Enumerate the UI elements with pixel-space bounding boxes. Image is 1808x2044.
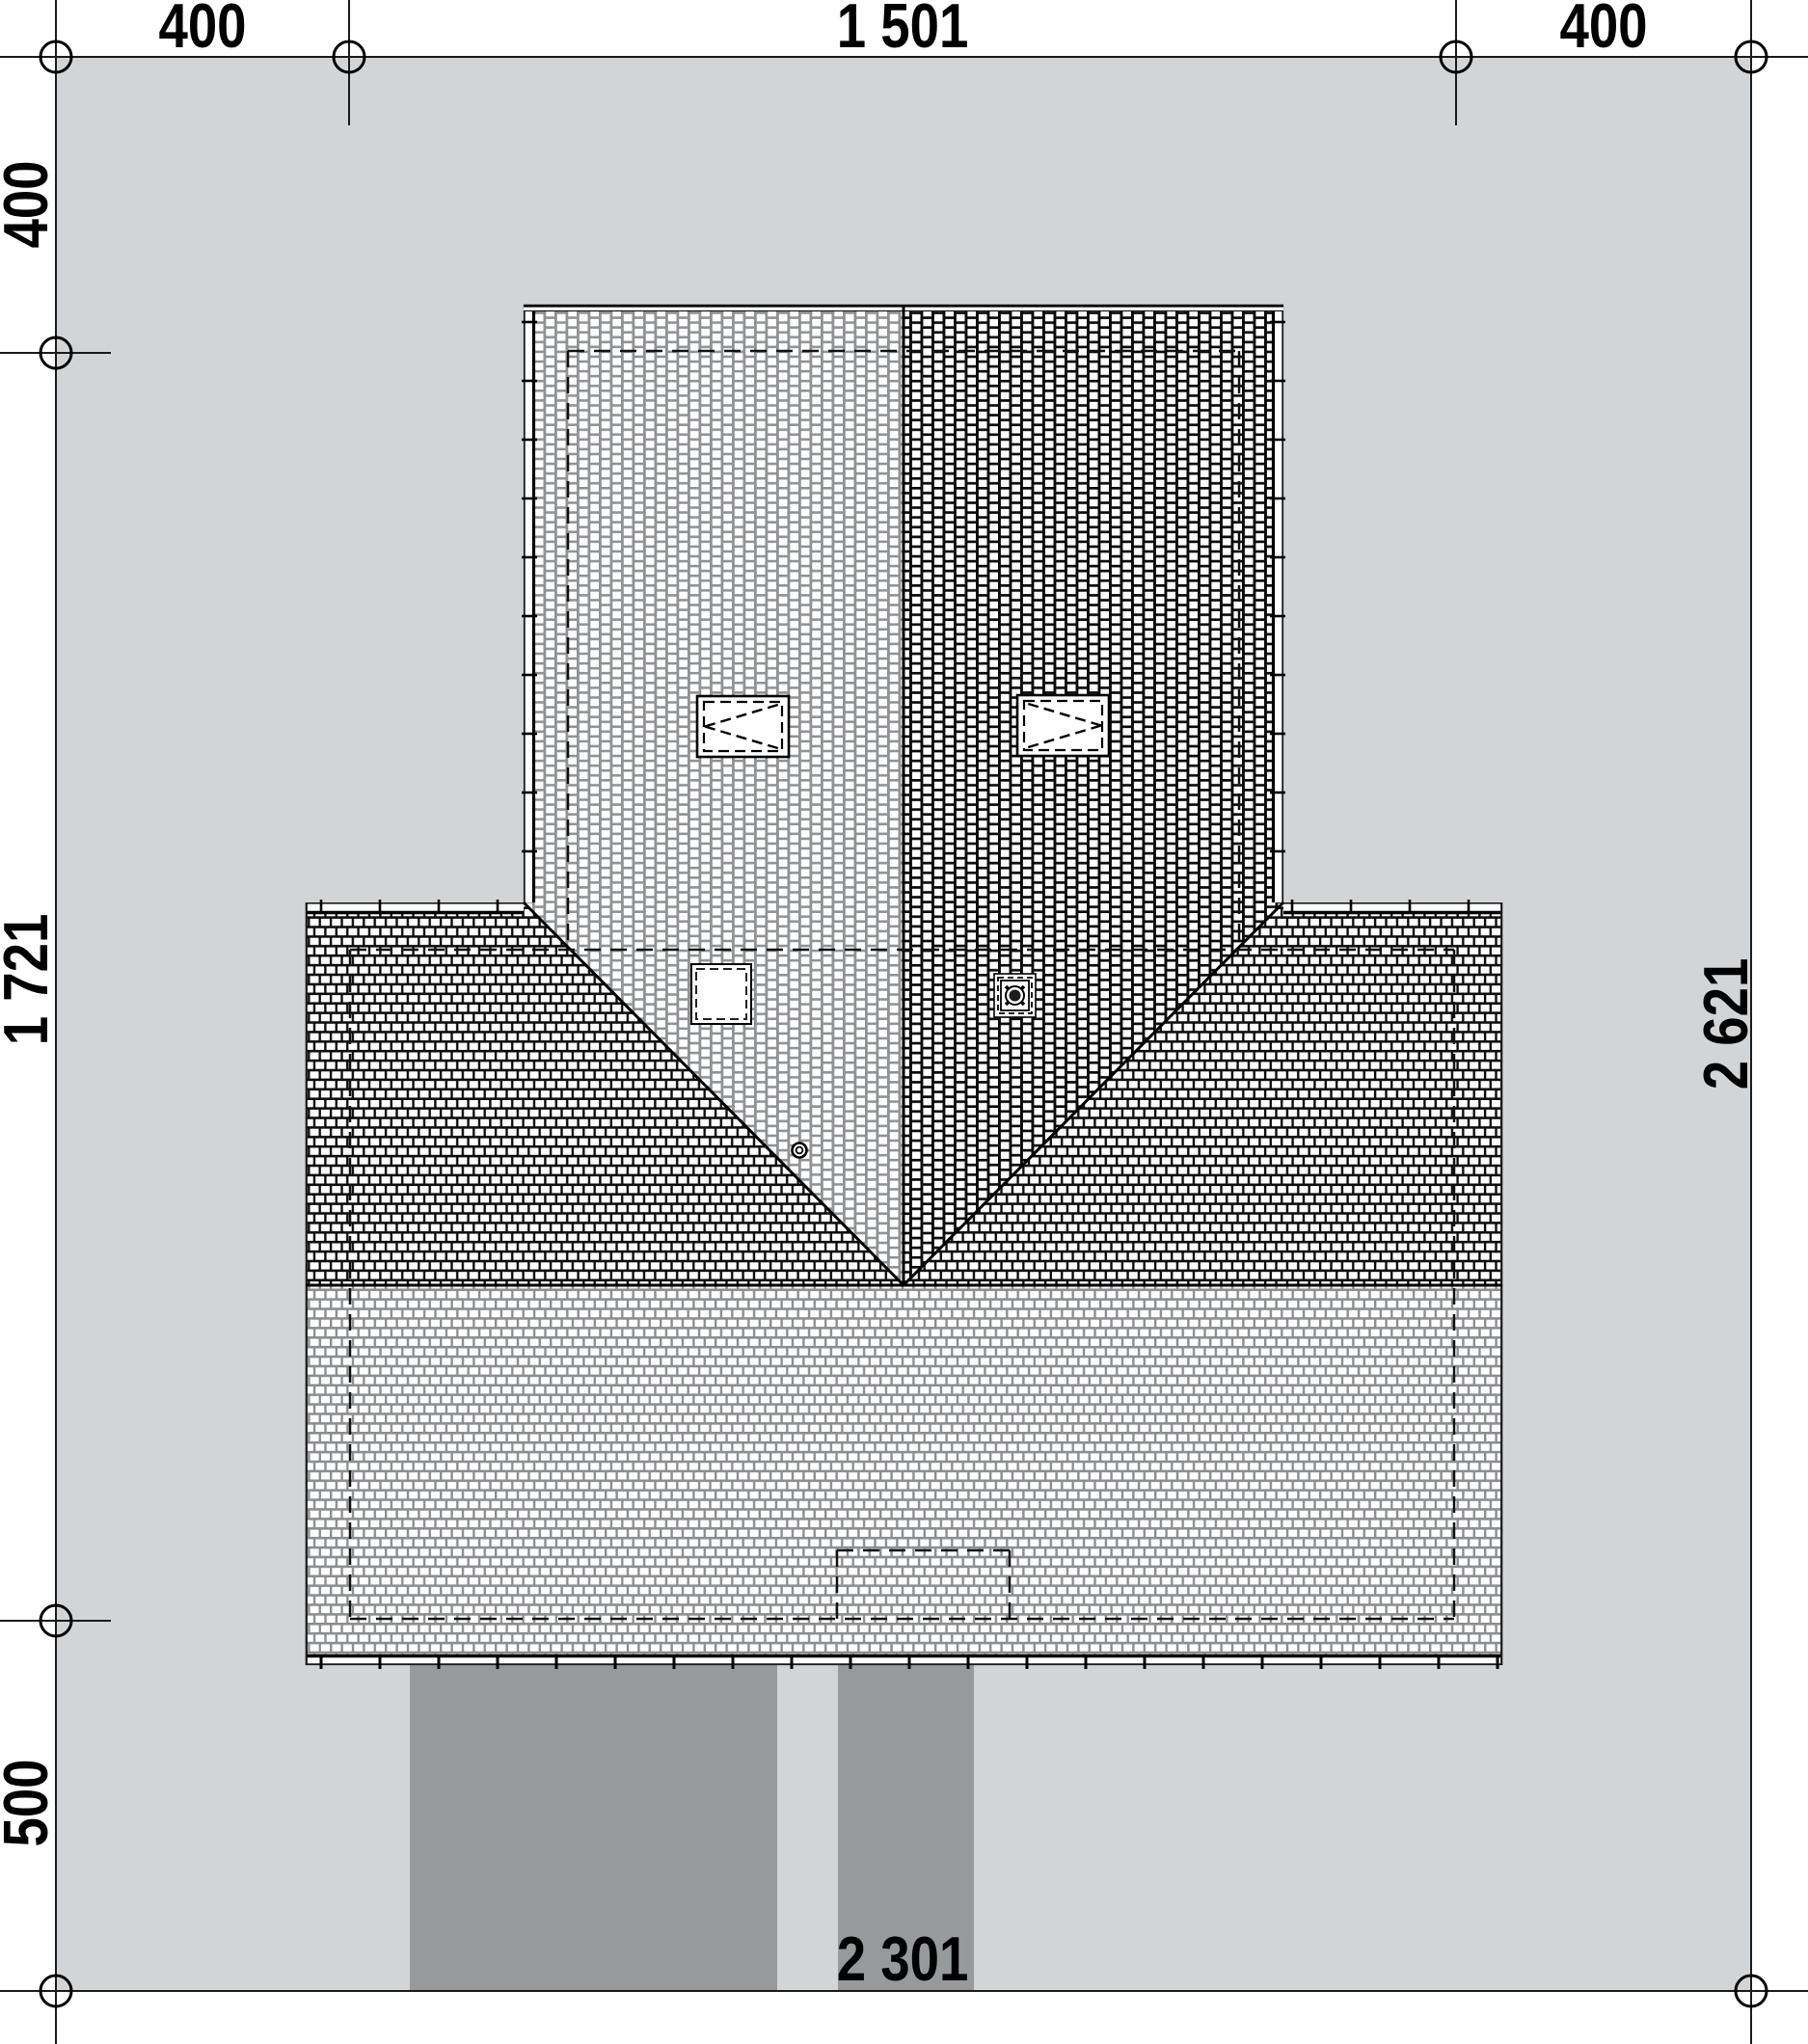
svg-text:500: 500 <box>0 1759 61 1846</box>
svg-text:2 301: 2 301 <box>837 1924 969 1995</box>
svg-text:1 501: 1 501 <box>837 0 969 61</box>
svg-text:400: 400 <box>0 160 61 248</box>
svg-text:400: 400 <box>1559 0 1647 61</box>
svg-text:1 721: 1 721 <box>0 914 61 1046</box>
svg-text:2 621: 2 621 <box>1691 958 1762 1090</box>
svg-text:400: 400 <box>158 0 246 61</box>
